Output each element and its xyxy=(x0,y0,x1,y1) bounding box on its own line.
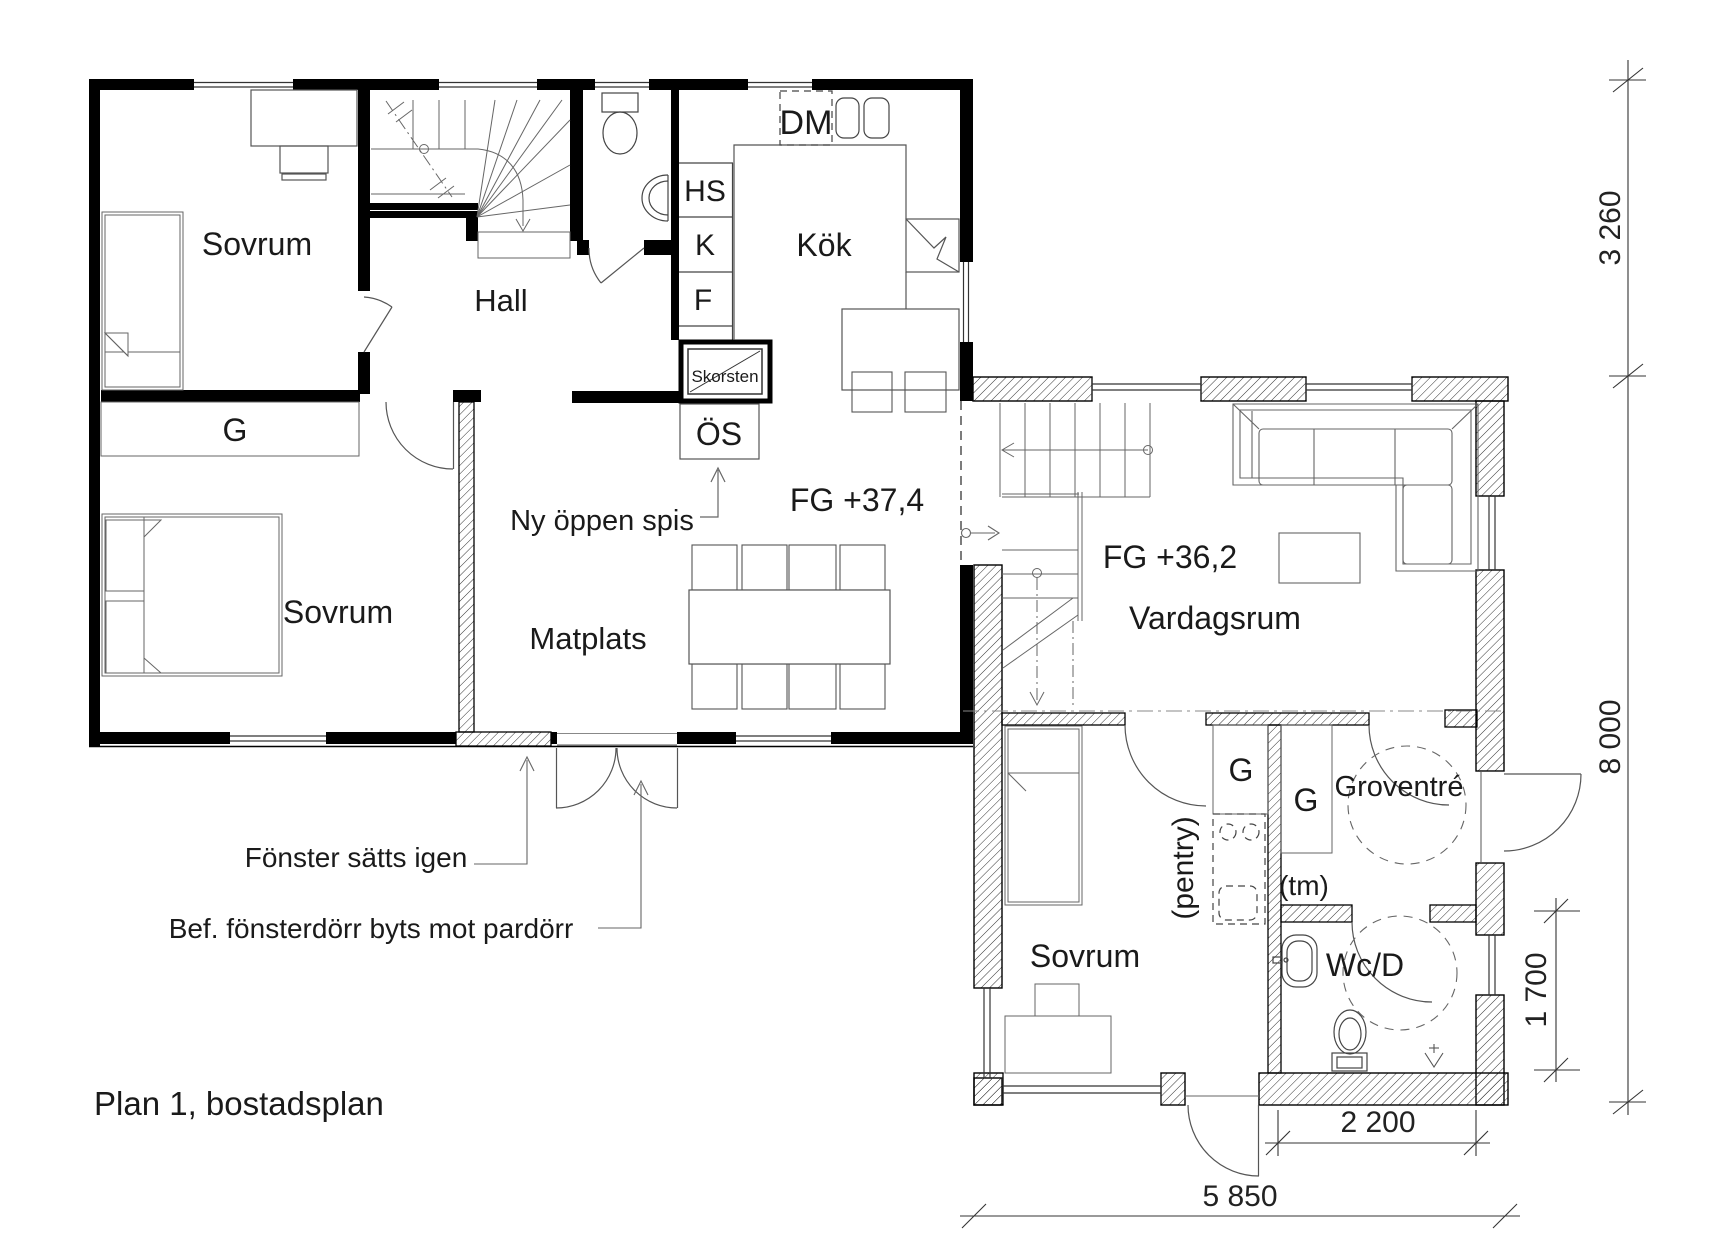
svg-text:Kök: Kök xyxy=(796,227,852,263)
svg-text:1 700: 1 700 xyxy=(1520,952,1553,1027)
svg-text:Matplats: Matplats xyxy=(529,621,646,656)
svg-text:Vardagsrum: Vardagsrum xyxy=(1129,600,1301,636)
svg-text:Sovrum: Sovrum xyxy=(202,226,312,262)
svg-text:FG +36,2: FG +36,2 xyxy=(1103,539,1237,575)
svg-text:8 000: 8 000 xyxy=(1594,699,1627,774)
svg-text:HS: HS xyxy=(684,175,726,208)
svg-text:Skorsten: Skorsten xyxy=(691,367,758,386)
svg-text:(pentry): (pentry) xyxy=(1167,816,1200,919)
svg-text:2 200: 2 200 xyxy=(1340,1106,1415,1139)
svg-text:G: G xyxy=(223,412,248,448)
svg-text:G: G xyxy=(1294,782,1319,818)
svg-text:K: K xyxy=(695,229,715,262)
svg-text:Groventré: Groventré xyxy=(1335,771,1464,803)
svg-text:F: F xyxy=(694,284,712,317)
svg-text:Ny öppen spis: Ny öppen spis xyxy=(510,505,694,537)
svg-text:Plan 1, bostadsplan: Plan 1, bostadsplan xyxy=(94,1085,384,1122)
svg-text:FG +37,4: FG +37,4 xyxy=(790,482,924,518)
svg-text:Sovrum: Sovrum xyxy=(283,594,393,630)
svg-text:Sovrum: Sovrum xyxy=(1030,938,1140,974)
svg-text:ÖS: ÖS xyxy=(696,416,742,452)
svg-text:Hall: Hall xyxy=(474,283,527,318)
svg-text:Bef. fönsterdörr byts mot pard: Bef. fönsterdörr byts mot pardörr xyxy=(169,913,574,944)
svg-text:5 850: 5 850 xyxy=(1202,1180,1277,1213)
svg-text:Wc/D: Wc/D xyxy=(1326,947,1404,983)
svg-text:DM: DM xyxy=(780,104,833,142)
svg-text:3 260: 3 260 xyxy=(1594,190,1627,265)
svg-text:Fönster sätts igen: Fönster sätts igen xyxy=(245,842,468,873)
svg-text:(tm): (tm) xyxy=(1279,870,1329,901)
svg-text:G: G xyxy=(1229,752,1254,788)
